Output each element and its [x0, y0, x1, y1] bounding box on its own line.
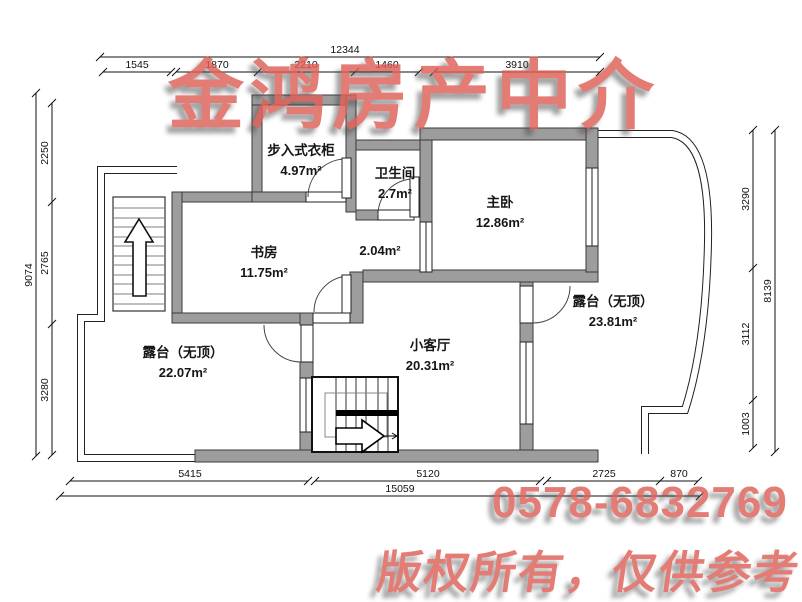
room-name: 露台（无顶）: [543, 292, 683, 312]
room-label-terrace-right: 露台（无顶） 23.81m²: [543, 292, 683, 332]
room-name: 小客厅: [360, 336, 500, 356]
room-name: 露台（无顶）: [113, 343, 253, 363]
dim-label: 2765: [39, 251, 51, 275]
dim-label: 2250: [39, 141, 51, 165]
dim-label: 3112: [740, 323, 752, 346]
room-area: 22.07m²: [113, 363, 253, 383]
room-name: 书房: [194, 243, 334, 263]
watermark-copyright-notice: 版权所有，仅供参考: [373, 536, 802, 601]
room-name: 卫生间: [325, 164, 465, 184]
room-area: 23.81m²: [543, 312, 683, 332]
staircase-lower: [312, 377, 398, 452]
dim-label: 5415: [178, 468, 202, 480]
door-terrace-left: [264, 325, 313, 362]
dim-label: 15059: [385, 483, 414, 495]
room-area: 11.75m²: [194, 263, 334, 283]
dim-label: 1003: [740, 412, 752, 436]
watermark-agency-name: 金鸿房产中介: [168, 34, 660, 144]
room-label-study: 书房 11.75m²: [194, 243, 334, 283]
dim-label: 1545: [125, 59, 149, 71]
room-name: 步入式衣柜: [231, 141, 371, 161]
room-area: 12.86m²: [430, 213, 570, 233]
staircase-upper: [113, 197, 165, 311]
room-label-living: 小客厅 20.31m²: [360, 336, 500, 376]
watermark-phone-number: 0578-6832769: [492, 478, 788, 528]
window: [586, 168, 598, 246]
room-label-bedroom: 主卧 12.86m²: [430, 193, 570, 233]
dim-label: 3280: [39, 378, 51, 402]
dim-label: 8139: [762, 279, 774, 303]
room-label-terrace-left: 露台（无顶） 22.07m²: [113, 343, 253, 383]
floorplan-page: 12344 1545 1870 2210 1460 3910 9074 2250…: [0, 0, 802, 602]
dim-label: 3290: [740, 187, 752, 211]
room-name: 主卧: [430, 193, 570, 213]
room-area: 20.31m²: [360, 356, 500, 376]
dim-label: 5120: [416, 468, 440, 480]
dim-label: 9074: [23, 263, 35, 287]
window: [520, 342, 533, 424]
